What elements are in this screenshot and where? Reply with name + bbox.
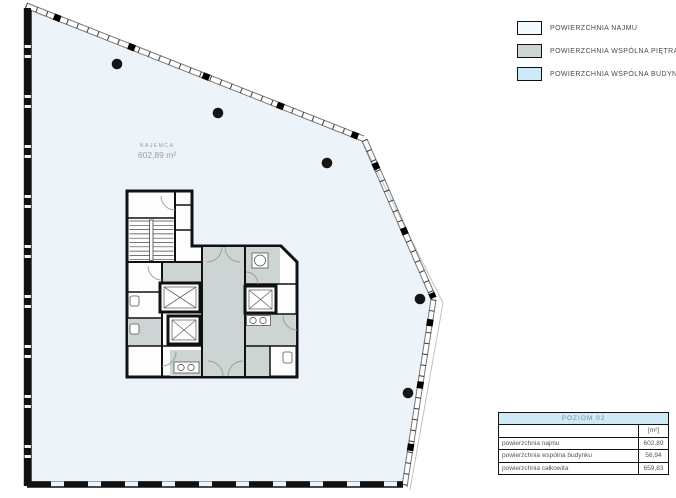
table-row-units: [m²] — [499, 425, 668, 438]
toilet-area-right-lower — [246, 346, 270, 376]
bottom-wall — [27, 482, 403, 488]
table-cell-value: 602,89 — [638, 438, 668, 450]
area-summary-table: POZIOM 02 [m²] powierzchnia najmu 602,89… — [498, 412, 669, 475]
legend-label: POWIERZCHNIA NAJMU — [550, 25, 637, 32]
elevator-shaft — [168, 316, 200, 344]
table-title: POZIOM 02 — [499, 413, 668, 425]
tenant-label-text: NAJEMCA — [140, 143, 175, 149]
table-cell-value: 659,83 — [638, 463, 668, 475]
legend-item-najmu: POWIERZCHNIA NAJMU — [517, 21, 676, 35]
legend-swatch-wspolna-pietra — [517, 44, 542, 58]
table-row: powierzchnia najmu 602,89 — [499, 438, 668, 451]
legend-item-wspolna-budynku: POWIERZCHNIA WSPÓLNA BUDYNKU — [517, 67, 676, 81]
column — [403, 388, 414, 399]
elevator-shaft — [245, 286, 276, 313]
table-cell-unit: [m²] — [638, 425, 668, 437]
tenant-area-label: NAJEMCA 602,89 m² — [138, 143, 176, 160]
column — [213, 108, 224, 119]
legend-item-wspolna-pietra: POWIERZCHNIA WSPÓLNA PIĘTRA — [517, 44, 676, 58]
elevator-shaft — [160, 283, 200, 312]
legend-swatch-najmu — [517, 21, 542, 35]
legend-label: POWIERZCHNIA WSPÓLNA PIĘTRA — [550, 48, 676, 55]
legend-swatch-wspolna-budynku — [517, 67, 542, 81]
tenant-area-value: 602,89 m² — [138, 150, 176, 160]
table-cell-label: powierzchnia najmu — [499, 438, 638, 450]
vestibule — [162, 262, 202, 284]
table-row: powierzchnia całkowita 659,83 — [499, 463, 668, 475]
table-cell-label — [499, 425, 638, 437]
table-cell-label: powierzchnia wspólna budynku — [499, 450, 638, 462]
legend: POWIERZCHNIA NAJMU POWIERZCHNIA WSPÓLNA … — [517, 21, 676, 90]
floor-plan-page: { "legend": { "items": [ {"label": "POWI… — [0, 0, 676, 498]
legend-label: POWIERZCHNIA WSPÓLNA BUDYNKU — [550, 71, 676, 78]
table-row: powierzchnia wspólna budynku 56,94 — [499, 450, 668, 463]
table-cell-value: 56,94 — [638, 450, 668, 462]
stair-rail — [150, 220, 154, 261]
column — [322, 158, 333, 169]
column — [415, 294, 426, 305]
column — [112, 59, 123, 70]
table-cell-label: powierzchnia całkowita — [499, 463, 638, 475]
corridor — [202, 247, 245, 376]
